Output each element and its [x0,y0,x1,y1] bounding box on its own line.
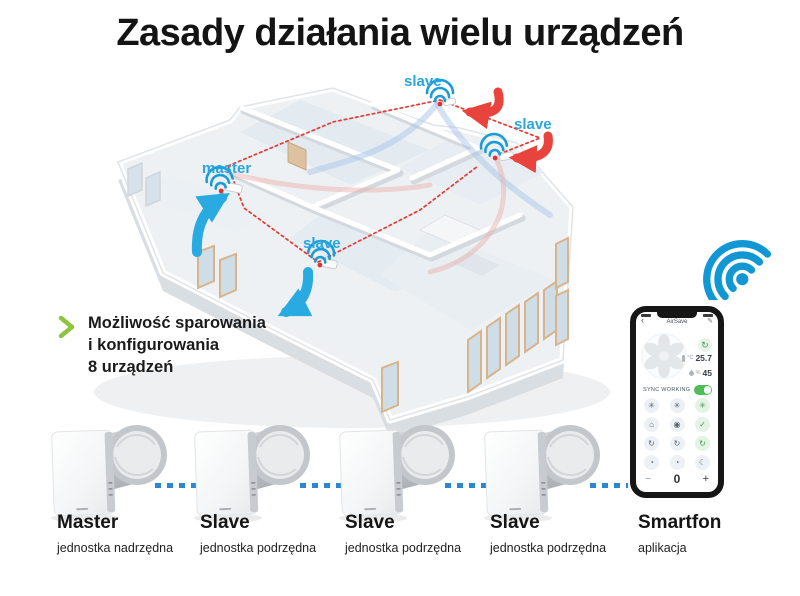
toggle-knob [704,386,712,394]
device-subtitle: jednostka podrzędna [200,541,350,555]
timer-2-icon[interactable]: ◔ [670,455,685,470]
feature-line-2: i konfigurowania [88,334,318,356]
humidity-value: 45 [703,368,712,378]
humidity-unit: % [696,370,701,376]
chevron-bullet-icon [58,315,78,341]
timer-1-icon[interactable]: ◔ [644,455,659,470]
eco-mode-icon[interactable]: ✓ [695,417,710,432]
page-title: Zasady działania wielu urządzeń [0,12,800,55]
house-label-slave1: slave [404,73,442,90]
auto-cycle-3-icon[interactable]: ↻ [695,436,710,451]
fan-auto-icon[interactable]: ✳ [695,398,710,413]
fan-device-slave-3 [478,425,618,525]
sync-refresh-button[interactable]: ↻ [698,338,712,352]
app-title: AirSave [636,319,718,325]
device-name: Slave [345,512,495,534]
feature-line-1: Możliwość sparowania [88,312,318,334]
airflow-arrow-red-slave1 [470,92,499,113]
fan-device-master [45,425,185,525]
auto-cycle-2-icon[interactable]: ↻ [670,436,685,451]
house-label-master: master [202,160,251,177]
fan-graphic [640,332,688,380]
device-caption-master: Master jednostka nadrzędna [57,512,207,555]
humidity-readout: % 45 [689,368,712,378]
device-subtitle: jednostka podrzędna [345,541,495,555]
device-name: Master [57,512,207,534]
house-label-slave3: slave [303,235,341,252]
fan-device-slave-2 [333,425,473,525]
auto-cycle-1-icon[interactable]: ↻ [644,436,659,451]
minus-button[interactable]: − [645,473,651,485]
feature-line-3: 8 urządzeń [88,356,318,378]
sync-working-label: SYNC WORKING [643,387,690,393]
humidity-drop-icon [688,369,695,376]
device-caption-slave-3: Slave jednostka podrzędna [490,512,640,555]
mode-buttons-grid: ✳ ✳ ✳ ⌂ ◉ ✓ ↻ ↻ ↻ ◔ ◔ ☾ [644,398,710,470]
home-mode-icon[interactable]: ⌂ [644,417,659,432]
device-subtitle: aplikacja [638,541,788,555]
night-mode-icon[interactable]: ☾ [695,455,710,470]
device-name: Smartfon [638,512,788,534]
infographic: Zasady działania wielu urządzeń [0,0,800,596]
sync-toggle[interactable] [694,385,712,395]
temperature-unit: °C [687,355,693,361]
house-label-slave2: slave [514,116,552,133]
sync-working-row: SYNC WORKING [643,385,712,395]
fan-speed-2-icon[interactable]: ✳ [670,398,685,413]
stepper-value: 0 [674,472,681,486]
humidity-mode-icon[interactable]: ◉ [670,417,685,432]
fan-device-slave-1 [188,425,328,525]
temperature-value: 25.7 [695,353,712,363]
device-caption-slave-2: Slave jednostka podrzędna [345,512,495,555]
app-screen: ‹ AirSave ✎ ↻ °C 25.7 [636,312,718,492]
smartphone-mockup: ‹ AirSave ✎ ↻ °C 25.7 [630,306,724,498]
device-subtitle: jednostka nadrzędna [57,541,207,555]
thermometer-icon [682,355,685,362]
fan-speed-1-icon[interactable]: ✳ [644,398,659,413]
device-caption-smartphone: Smartfon aplikacja [638,512,788,555]
device-subtitle: jednostka podrzędna [490,541,640,555]
device-name: Slave [200,512,350,534]
device-name: Slave [490,512,640,534]
device-caption-slave-1: Slave jednostka podrzędna [200,512,350,555]
edit-icon: ✎ [707,317,713,325]
temperature-readout: °C 25.7 [682,353,712,363]
feature-text: Możliwość sparowania i konfigurowania 8 … [88,312,318,378]
plus-button[interactable]: + [703,473,709,485]
wifi-icon [664,222,772,300]
speed-stepper: − 0 + [645,472,709,486]
